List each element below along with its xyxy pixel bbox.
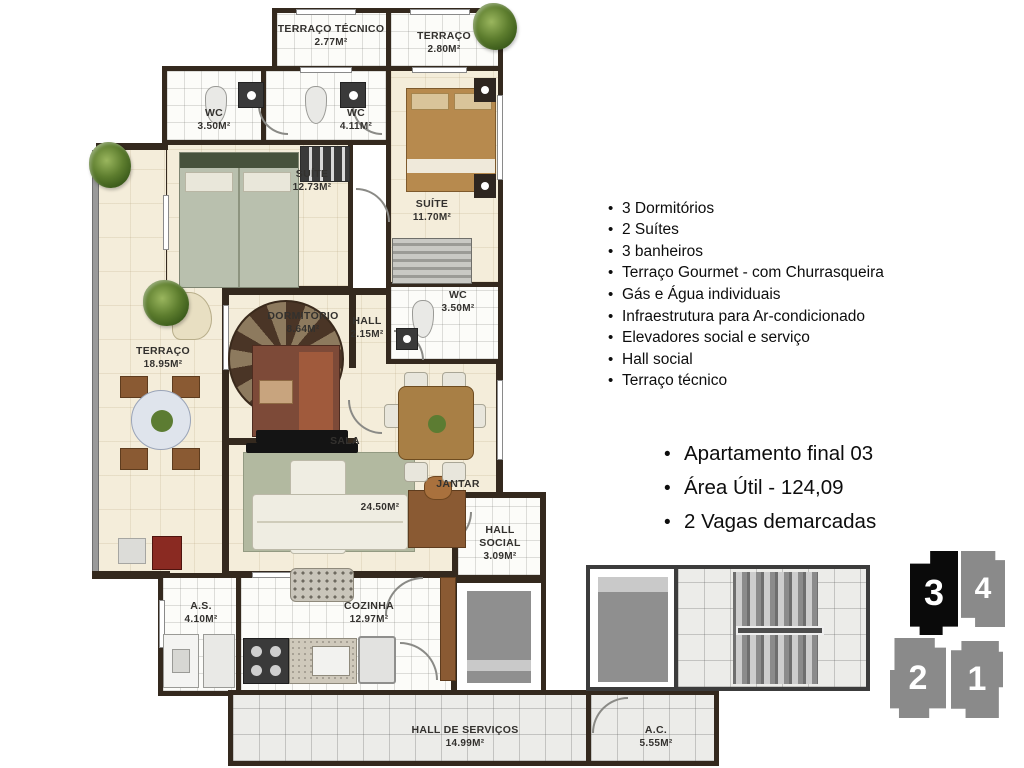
side-table (118, 538, 146, 564)
sheet-band (407, 159, 495, 173)
lamp (481, 182, 489, 190)
floorplan-slide: TERRAÇO TÉCNICO2.77M² TERRAÇO2.80M² WC3.… (0, 0, 1024, 768)
bullet-icon: • (608, 351, 622, 369)
list-item: •Hall social (608, 349, 884, 371)
window (412, 67, 467, 73)
patio-table (131, 390, 191, 450)
window (300, 67, 352, 73)
sink (238, 82, 264, 108)
fridge (358, 636, 396, 684)
room-label-hall-servicos: HALL DE SERVIÇOS14.99M² (411, 724, 518, 750)
room-hall-servicos (228, 690, 591, 766)
window (410, 9, 470, 15)
bullet-icon: • (608, 308, 622, 326)
keyplan-unit-4: 4 (961, 551, 1005, 627)
burner (251, 665, 262, 676)
twin-beds (179, 152, 299, 288)
room-label-area-servico: A.S.4.10M² (185, 600, 218, 626)
lamp (481, 86, 489, 94)
burner (270, 646, 281, 657)
door-leaf (440, 577, 456, 681)
apartment-highlights-list: •Apartamento final 03 •Área Útil - 124,0… (664, 437, 876, 539)
washer (163, 634, 199, 688)
room-label-sala: SALA (330, 435, 360, 448)
features-list: •3 Dormitórios •2 Suítes •3 banheiros •T… (608, 198, 884, 392)
wall-sala-left (222, 438, 229, 578)
tree-icon (89, 142, 131, 188)
room-label-sala-area: 24.50M² (361, 501, 400, 514)
elevator-service-cab (598, 577, 668, 682)
room-label-dormitorio: DORMITÓRIO8.64M² (267, 310, 338, 336)
unit-number: 1 (968, 660, 987, 699)
nightstand (474, 174, 496, 198)
wardrobe (392, 238, 472, 284)
sink (340, 82, 366, 108)
room-label-jantar: JANTAR (436, 478, 480, 491)
burner (270, 665, 281, 676)
centerpiece (428, 415, 446, 433)
washer-door (172, 649, 190, 673)
patio-chair (120, 448, 148, 470)
room-label-hall: HALL2.15M² (351, 315, 384, 341)
stove (243, 638, 289, 684)
keyplan-unit-1: 1 (951, 641, 1003, 718)
bed (252, 345, 340, 437)
unit-number: 2 (909, 659, 928, 698)
burner (251, 646, 262, 657)
list-item: •2 Vagas demarcadas (664, 505, 876, 539)
door-arc-suite2 (356, 188, 390, 222)
sink (396, 328, 418, 350)
basin (247, 91, 256, 100)
room-label-suite-2: SUÍTE11.70M² (413, 198, 451, 224)
headboard (180, 153, 298, 168)
list-item: •Terraço Gourmet - com Churrasqueira (608, 263, 884, 285)
blanket (299, 352, 333, 432)
keyplan-unit-2: 2 (890, 638, 946, 718)
unit-number: 4 (975, 572, 992, 606)
room-label-terraco-norte: TERRAÇO2.80M² (417, 30, 471, 56)
room-label-wc-2: WC4.11M² (340, 107, 372, 133)
dining-table (398, 386, 474, 460)
list-item: •Gás e Água individuais (608, 284, 884, 306)
blanket-seam (238, 168, 240, 287)
stairs-handrail (736, 626, 824, 635)
room-label-ac: A.C.5.55M² (640, 724, 673, 750)
room-label-terraco-tecnico: TERRAÇO TÉCNICO2.77M² (278, 23, 385, 49)
bullet-icon: • (664, 475, 684, 502)
basin (403, 335, 411, 343)
bullet-icon: • (608, 286, 622, 304)
room-label-wc-1: WC3.50M² (198, 107, 231, 133)
window (497, 95, 503, 180)
list-item: •Elevadores social e serviço (608, 328, 884, 350)
bullet-icon: • (608, 200, 622, 218)
kitchen-sink (312, 646, 350, 676)
dining-chair (404, 462, 428, 482)
table-plant (151, 410, 173, 432)
bullet-icon: • (608, 329, 622, 347)
bullet-icon: • (608, 264, 622, 282)
bullet-icon: • (664, 509, 684, 536)
pillow (259, 380, 293, 404)
laundry-tank (203, 634, 235, 688)
list-item: •2 Suítes (608, 220, 884, 242)
list-item: •Apartamento final 03 (664, 437, 876, 471)
basin (349, 91, 358, 100)
room-label-hall-social: HALL SOCIAL3.09M² (469, 524, 531, 563)
window (296, 9, 356, 15)
sofa-cushion-line (257, 521, 403, 523)
unit-number: 3 (924, 572, 944, 614)
room-label-wc-3: WC3.50M² (442, 289, 475, 315)
hanging-rack (290, 568, 354, 602)
barbecue-cart (152, 536, 182, 570)
elevator-service-door (598, 577, 668, 592)
list-item: •Área Útil - 124,09 (664, 471, 876, 505)
list-item: •Terraço técnico (608, 371, 884, 393)
pillow (411, 93, 449, 110)
window (497, 380, 503, 460)
nightstand (474, 78, 496, 102)
room-label-terraco: TERRAÇO18.95M² (136, 345, 190, 371)
tree-icon (143, 280, 189, 326)
window (163, 195, 169, 250)
bullet-icon: • (664, 441, 684, 468)
list-item: •3 Dormitórios (608, 198, 884, 220)
list-item: •Infraestrutura para Ar-condicionado (608, 306, 884, 328)
tree-icon (473, 3, 517, 50)
patio-chair (172, 448, 200, 470)
room-label-suite-1: SUÍTE12.73M² (293, 168, 332, 194)
bullet-icon: • (608, 221, 622, 239)
list-item: •3 banheiros (608, 241, 884, 263)
pillow (243, 172, 291, 192)
bullet-icon: • (608, 243, 622, 261)
elevator-social-door (467, 660, 531, 671)
wall-dormitorio-top (222, 288, 390, 295)
terrace-railing-left (92, 150, 99, 578)
room-label-cozinha: COZINHA12.97M² (344, 600, 394, 626)
pillow (185, 172, 233, 192)
bullet-icon: • (608, 372, 622, 390)
